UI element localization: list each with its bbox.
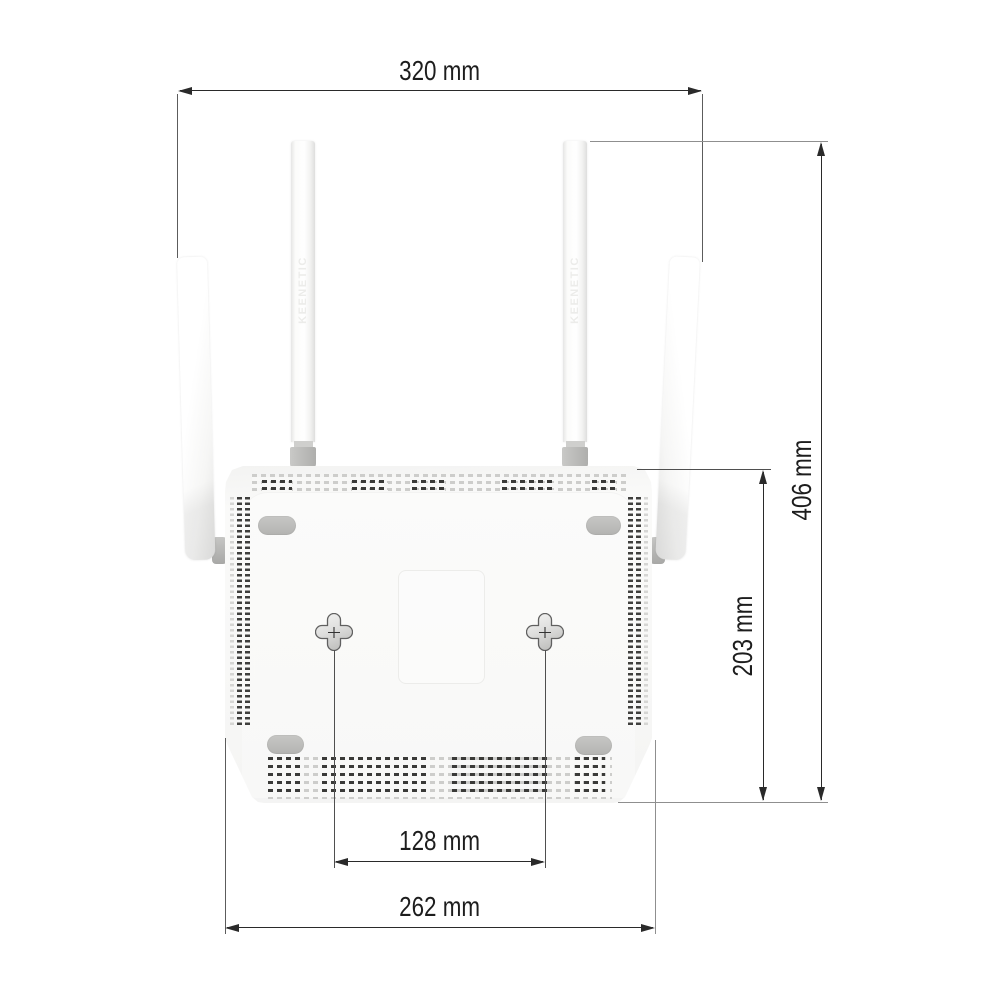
arrowhead-up (817, 142, 825, 156)
vent-strip (628, 497, 633, 725)
dimension-drawing: KEENETIC KEENETIC (0, 0, 1000, 1000)
vent-cluster (502, 480, 555, 491)
dimension-label-hole-spacing: 128 mm (334, 826, 545, 856)
vent-cluster (352, 480, 388, 491)
arrowhead-right (688, 87, 702, 95)
extension-line-320-left (177, 94, 178, 258)
arrowhead-right (641, 924, 655, 932)
arrowhead-up (759, 470, 767, 484)
arrowhead-left (334, 858, 348, 866)
extension-line-203-top (637, 469, 771, 470)
vent-cluster (322, 757, 428, 793)
vent-column-left (230, 497, 250, 725)
label-area (398, 570, 485, 684)
vent-cluster (262, 480, 292, 491)
vent-column-right (628, 497, 648, 725)
dimension-label-mount-height: 203 mm (728, 596, 758, 677)
dimension-line-320 (180, 90, 701, 91)
dimension-label-width-bottom: 262 mm (225, 892, 655, 922)
mounting-keyhole-right (526, 613, 564, 651)
arrowhead-down (817, 787, 825, 801)
dimension-line-128 (336, 861, 543, 862)
vent-band-bottom (268, 757, 612, 799)
vent-cluster (268, 757, 300, 793)
vent-cluster (412, 480, 445, 491)
extension-line-406-bottom (618, 802, 828, 803)
dimension-line-406 (821, 144, 822, 800)
vent-strip (636, 497, 641, 725)
vent-cluster (452, 757, 548, 793)
vent-strip (230, 497, 234, 725)
dimension-line-262 (227, 927, 653, 928)
rubber-foot-bottom-right (575, 736, 612, 755)
vent-strip (245, 497, 250, 725)
vent-cluster (575, 757, 605, 793)
dimension-label-width-top: 320 mm (178, 56, 702, 86)
antenna-hinge-left (290, 447, 316, 468)
brand-embossed-text: KEENETIC (297, 256, 309, 324)
dimension-label-height-right: 406 mm (787, 440, 817, 521)
vent-cluster (592, 480, 616, 491)
extension-line-320-right (702, 94, 703, 262)
antenna-hinge-right (562, 447, 588, 468)
vent-strip (237, 497, 242, 725)
arrowhead-down (759, 787, 767, 801)
arrowhead-left (225, 924, 239, 932)
antenna-blade-right (655, 256, 700, 560)
rubber-foot-bottom-left (267, 735, 304, 754)
vent-strip (644, 497, 648, 725)
antenna-crease (182, 423, 216, 560)
antenna-blade-left (177, 257, 215, 561)
brand-embossed-text: KEENETIC (569, 256, 581, 324)
mounting-keyhole-left (315, 613, 353, 651)
extension-line-406-top (590, 141, 828, 142)
arrowhead-right (531, 858, 545, 866)
arrowhead-left (178, 87, 192, 95)
dimension-line-203 (763, 472, 764, 800)
antenna-crease (655, 423, 692, 561)
rubber-foot-top-right (586, 516, 621, 535)
vent-band-top (252, 474, 626, 491)
rubber-foot-top-left (258, 516, 296, 535)
